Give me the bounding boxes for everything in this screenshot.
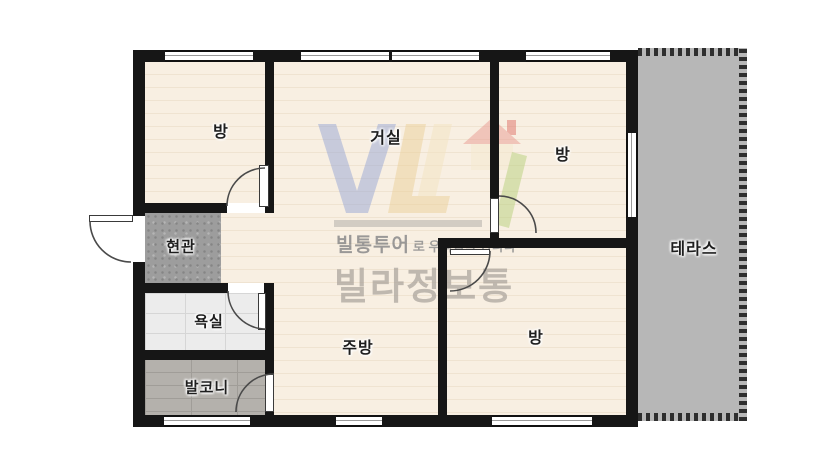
floorplan-canvas: 빌통투어 로 우리집을 만나다 빌라정보통 bbox=[0, 0, 840, 472]
label-bedroom-bottom-right: 방 bbox=[528, 324, 544, 348]
label-balcony: 발코니 bbox=[185, 377, 229, 398]
label-bedroom-top-right: 방 bbox=[555, 141, 571, 165]
door-arc-bedroom1 bbox=[227, 168, 265, 206]
label-bathroom: 욕실 bbox=[194, 311, 224, 332]
label-bedroom-top-left: 방 bbox=[213, 118, 229, 142]
door-arc-entrance bbox=[90, 221, 131, 262]
label-living-room: 거실 bbox=[370, 124, 401, 148]
label-kitchen: 주방 bbox=[342, 334, 373, 358]
door-arc-balcony bbox=[236, 374, 274, 412]
door-arc-bedroom2 bbox=[499, 196, 536, 233]
label-entrance: 현관 bbox=[166, 236, 196, 257]
door-arc-bathroom bbox=[228, 291, 266, 329]
label-terrace: 테라스 bbox=[670, 235, 717, 259]
door-arc-bedroom3 bbox=[450, 251, 490, 291]
